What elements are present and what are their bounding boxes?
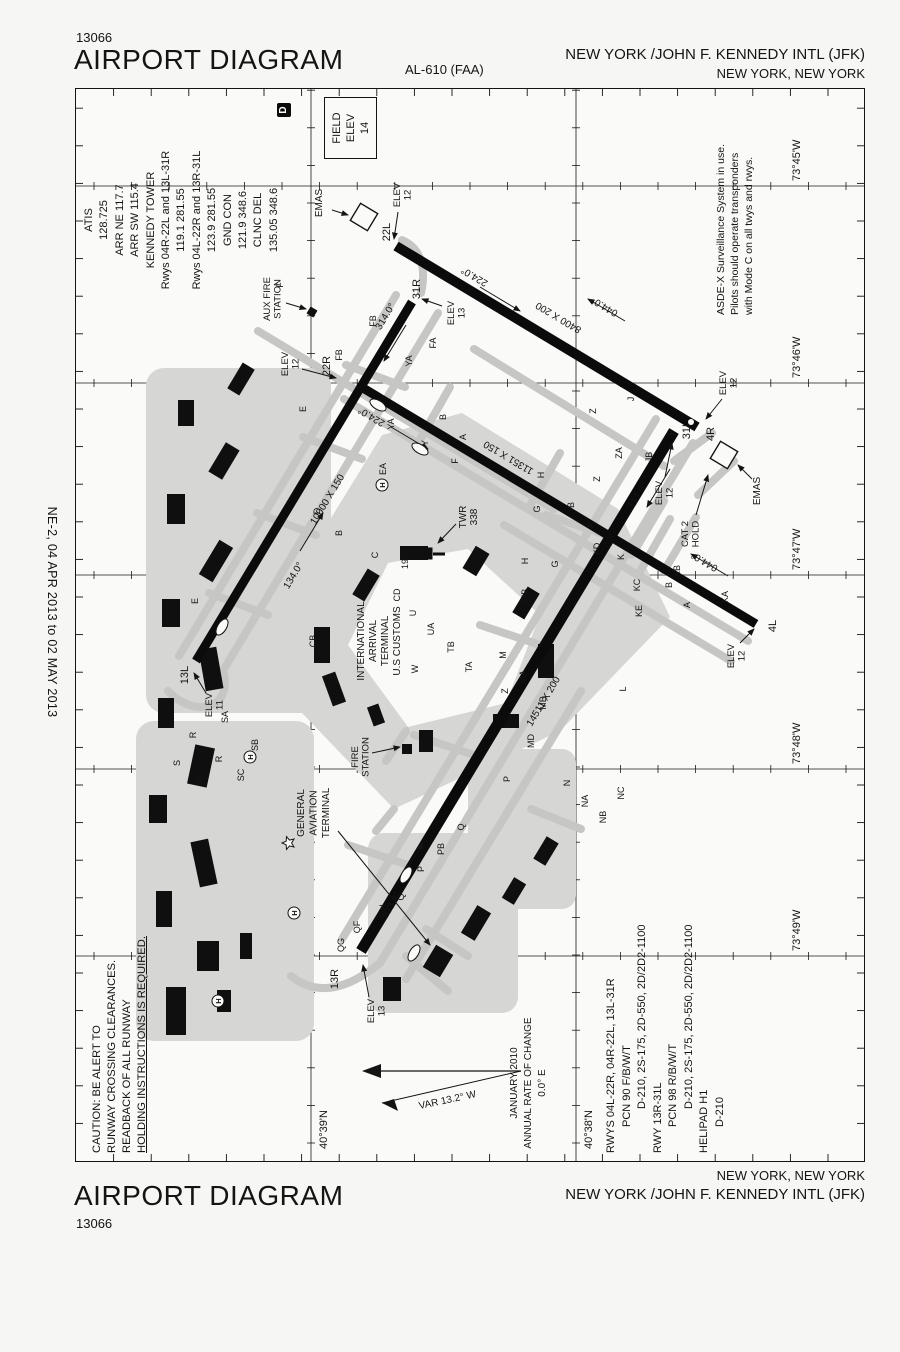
emas-pad	[350, 203, 377, 230]
comms-line: CLNC DEL	[251, 99, 266, 341]
taxiway-label: Z	[588, 408, 598, 414]
taxiway-label: F	[450, 458, 460, 464]
taxiway-label: MB	[538, 696, 548, 710]
taxiway-label: NB	[598, 811, 608, 824]
runway-data-line: HELIPAD H1	[697, 925, 713, 1153]
fire-station-building	[402, 744, 412, 754]
runway-end-label: 4R	[705, 427, 717, 441]
elevation-leader	[706, 399, 722, 419]
header-al-ref: AL-610 (FAA)	[405, 62, 484, 77]
caution-note: CAUTION: BE ALERT TO RUNWAY CROSSING CLE…	[90, 936, 150, 1153]
taxiway-label: A	[458, 434, 468, 440]
threshold-elevation: ELEV12	[726, 643, 748, 668]
longitude-label: 73°46'W	[791, 336, 803, 378]
helipad-letter: H	[214, 998, 223, 1003]
asde-line: ASDE-X Surveillance System in use.	[714, 144, 728, 315]
cat2-hold-label: CAT 2HOLD	[680, 521, 702, 548]
taxiway-label: A	[586, 522, 596, 528]
threshold-dot	[688, 419, 694, 425]
taxiway-label: HB	[520, 589, 530, 602]
field-elev-label: FIELD	[330, 100, 344, 156]
threshold-elevation: ELEV13	[446, 300, 468, 325]
footer-title: AIRPORT DIAGRAM	[74, 1180, 343, 1212]
taxiway-label: B	[566, 502, 576, 508]
taxiway-label: B	[438, 414, 448, 420]
taxiway-label: JB	[644, 452, 654, 463]
taxiway-label: CB	[308, 635, 318, 648]
taxiway-label: KA	[720, 591, 730, 603]
taxiway-label: A	[682, 602, 692, 608]
runway-heading: 044.0°	[689, 549, 720, 573]
taxiway-label: KB	[672, 565, 682, 577]
field-elev-label: ELEV	[344, 100, 358, 156]
taxiway-label: QF	[352, 920, 362, 933]
runway-data-line: RWYS 04L-22R, 04R-22L, 13L-31R	[604, 925, 620, 1153]
faa-airport-diagram-page: { "margin_notes": { "left": "NE-2, 04 AP…	[0, 0, 900, 1352]
taxiway-label: H	[536, 472, 546, 479]
taxiway-label: KE	[634, 605, 644, 617]
taxiway-label: ZA	[614, 447, 624, 459]
asde-x-note: ASDE-X Surveillance System in use. Pilot…	[714, 144, 756, 315]
helipad-letter: H	[378, 482, 387, 487]
taxiway-label: C	[370, 551, 380, 558]
comms-line: ARR NE 117.7	[113, 99, 128, 341]
elevation-leader	[422, 299, 442, 306]
taxiway-label: SD	[194, 772, 204, 785]
tower-label: TWR338	[458, 506, 480, 529]
taxiway-label: F	[666, 430, 676, 436]
longitude-label: 73°47'W	[791, 528, 803, 570]
longitude-label: 73°48'W	[791, 722, 803, 764]
taxiway-label: U	[408, 610, 418, 617]
taxiway-label: QG	[336, 938, 346, 952]
taxiway-label: UA	[426, 623, 436, 636]
elevation-leader	[394, 212, 398, 239]
runway-data-line: RWY 13R-31L	[651, 925, 667, 1153]
taxiway-label: PB	[436, 843, 446, 855]
taxiway-label: SC	[236, 768, 246, 781]
taxiway-label: W	[410, 664, 420, 673]
helipad-letter: H	[246, 754, 255, 759]
comms-line: 123.9 281.55	[205, 99, 220, 341]
ga-terminal-label: GENERALAVIATIONTERMINAL	[296, 787, 332, 838]
taxiway-label: G	[532, 505, 542, 512]
taxiway-label: EA	[378, 463, 388, 475]
variation-line: JANUARY 2010	[508, 1015, 522, 1151]
taxiway-label: Y	[420, 440, 430, 446]
taxiway-label: S	[172, 760, 182, 766]
obstruction-label: 197	[400, 554, 410, 569]
runway-data-block: RWYS 04L-22R, 04R-22L, 13L-31R PCN 90 F/…	[604, 925, 728, 1153]
latitude-label: 40°38'N	[583, 1110, 595, 1149]
runway-end-label: 13R	[329, 969, 341, 989]
footer-airport-name: NEW YORK /JOHN F. KENNEDY INTL (JFK)	[565, 1186, 865, 1203]
leader-line	[286, 303, 306, 309]
runway-data-line: PCN 90 F/B/W/T	[620, 925, 636, 1153]
taxiway-label: TA	[464, 662, 474, 673]
latitude-label: 40°39'N	[318, 1110, 330, 1149]
taxiway-label: H	[520, 558, 530, 565]
longitude-label: 73°49'W	[791, 909, 803, 951]
helipad-letter: H	[290, 910, 299, 915]
taxiway-label: Q	[396, 893, 406, 900]
field-elevation-box: FIELD ELEV 14	[324, 97, 377, 159]
comms-line: ARR SW 115.4	[128, 99, 143, 341]
taxiway-label: Q	[456, 823, 466, 830]
taxiway-label: MD	[526, 734, 536, 748]
taxiway-label: FB	[368, 315, 378, 327]
comms-frequency-block: ATIS 128.725 ARR NE 117.7 ARR SW 115.4 K…	[82, 99, 282, 341]
taxiway-label: MA	[518, 670, 528, 684]
runway-data-line: D-210, 2S-175, 2D-550, 2D/2D2-1100	[635, 925, 651, 1153]
runway-data-line: D-210	[713, 925, 729, 1153]
taxiway-label: D	[312, 507, 322, 514]
footer-chart-number: 13066	[76, 1216, 112, 1231]
taxiway-label: K	[616, 554, 626, 560]
taxiway-label: R	[214, 755, 224, 762]
taxiway-label: J	[626, 397, 636, 402]
asde-line: with Mode C on all twys and rwys.	[742, 144, 756, 315]
emas-label: EMAS	[752, 477, 763, 506]
taxiway-label: SA	[220, 711, 230, 723]
variation-arrow-head	[382, 1099, 398, 1111]
heading-arrow	[691, 554, 728, 576]
caution-line: READBACK OF ALL RUNWAY	[120, 936, 135, 1153]
taxiway-label: B	[334, 530, 344, 536]
variation-line: ANNUAL RATE OF CHANGE	[522, 1015, 536, 1151]
header-airport-name: NEW YORK /JOHN F. KENNEDY INTL (JFK)	[565, 46, 865, 63]
taxiway-label: P	[502, 776, 512, 782]
variation-note: JANUARY 2010 ANNUAL RATE OF CHANGE 0.0° …	[508, 1015, 551, 1151]
caution-line: RUNWAY CROSSING CLEARANCES.	[105, 936, 120, 1153]
taxiway-label: NA	[580, 795, 590, 808]
taxiway-label: TB	[446, 641, 456, 653]
taxiway-label: E	[190, 598, 200, 604]
taxiway-label: QH	[378, 904, 388, 918]
runway-heading: 044.0°	[589, 294, 620, 318]
runway-end-label: 22R	[321, 356, 333, 376]
comms-line: Rwys 04L-22R and 13R-31L	[190, 99, 205, 341]
threshold-elevation: ELEV12	[718, 370, 740, 395]
taxiway-label: Z	[592, 476, 602, 482]
taxiway-label: L	[618, 686, 628, 691]
comms-line: Rwys 04R-22L and 13L-31R	[159, 99, 174, 341]
taxiway-label: Z	[500, 688, 510, 694]
runway-end-label: 22L	[381, 223, 393, 241]
runway-end-label: 13L	[179, 666, 191, 684]
datis-symbol: D	[277, 103, 291, 117]
taxiway-label: P	[416, 866, 426, 872]
longitude-label: 73°45'W	[791, 139, 803, 181]
taxiway-label: KD	[592, 542, 602, 555]
taxiway-label: FA	[428, 337, 438, 348]
comms-line: 135.05 348.6	[267, 99, 282, 341]
header-chart-number: 13066	[76, 30, 112, 45]
field-elev-value: 14	[358, 100, 372, 156]
north-arrow-head	[362, 1064, 381, 1078]
caution-line: CAUTION: BE ALERT TO	[90, 936, 105, 1153]
footer-airport-city: NEW YORK, NEW YORK	[717, 1168, 865, 1183]
taxiway-label: B	[664, 582, 674, 588]
taxiway-label: KC	[632, 578, 642, 591]
runway-end-label: 4L	[767, 620, 779, 632]
taxiway-label: FB	[334, 349, 344, 361]
taxiway-label: NC	[616, 786, 626, 799]
header-title: AIRPORT DIAGRAM	[74, 44, 343, 76]
comms-line: GND CON	[221, 99, 236, 341]
asde-line: Pilots should operate transponders	[728, 144, 742, 315]
taxiway-label: CD	[392, 588, 402, 601]
comms-line: ATIS	[82, 99, 97, 341]
comms-line: KENNEDY TOWER	[144, 99, 159, 341]
header-airport-city: NEW YORK, NEW YORK	[717, 66, 865, 81]
taxiway-label: SB	[250, 739, 260, 751]
leader-line	[738, 465, 752, 479]
margin-note-left: NE-2, 04 APR 2013 to 02 MAY 2013	[45, 507, 59, 718]
leader-line	[332, 210, 348, 215]
chart-frame: 73°45'W73°46'W73°47'W73°48'W73°49'W40°39…	[75, 88, 865, 1162]
taxiway-label: E	[298, 406, 308, 412]
runway-end-label: 31R	[411, 279, 423, 299]
taxiway-label: M	[498, 651, 508, 659]
taxiway-label: YA	[386, 418, 396, 429]
comms-line: 121.9 348.6	[236, 99, 251, 341]
taxiway-label: N	[562, 780, 572, 787]
emas-label: EMAS	[314, 189, 325, 218]
variation-line: 0.0° E	[536, 1015, 550, 1151]
comms-line: 128.725	[97, 99, 112, 341]
caution-line-underlined: HOLDING INSTRUCTIONS IS REQUIRED.	[135, 936, 150, 1153]
taxiway-label: YA	[404, 355, 414, 366]
taxiway-label: G	[550, 560, 560, 567]
runway-data-line: D-210, 2S-175, 2D-550, 2D/2D2-1100	[682, 925, 698, 1153]
runway-data-line: PCN 98 R/B/W/T	[666, 925, 682, 1153]
rotated-chart-canvas: 73°45'W73°46'W73°47'W73°48'W73°49'W40°39…	[76, 89, 864, 1161]
comms-line: 119.1 281.55	[174, 99, 189, 341]
taxiway-label: R	[188, 731, 198, 738]
